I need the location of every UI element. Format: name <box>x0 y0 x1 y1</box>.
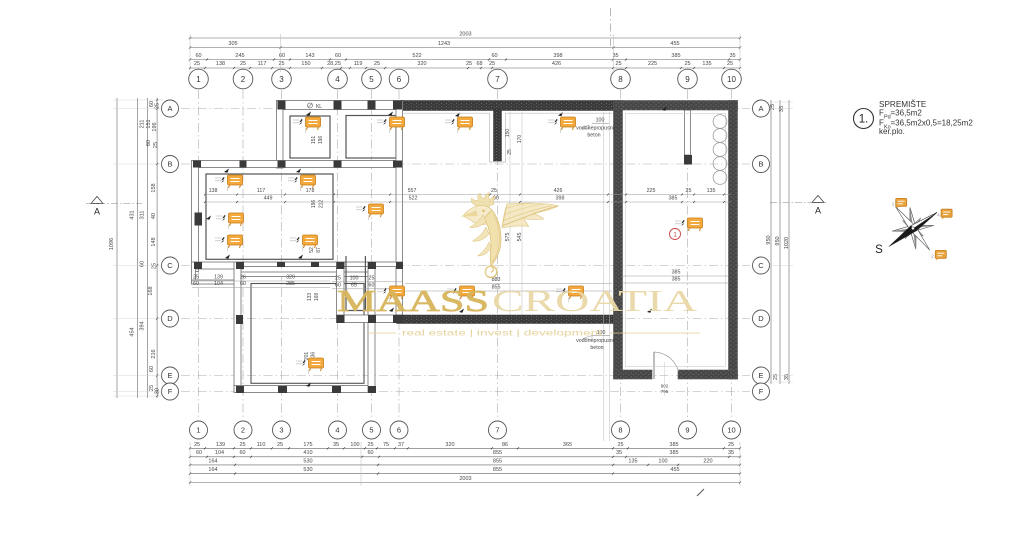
svg-text:25: 25 <box>727 61 733 67</box>
svg-text:4: 4 <box>335 426 339 435</box>
svg-text:2: 2 <box>241 75 246 84</box>
svg-text:60: 60 <box>146 140 152 146</box>
svg-text:135: 135 <box>707 188 716 194</box>
svg-text:1.: 1. <box>859 114 869 126</box>
svg-text:225: 225 <box>648 61 657 67</box>
svg-text:100: 100 <box>658 458 667 464</box>
svg-text:25: 25 <box>374 61 380 67</box>
svg-text:575: 575 <box>505 233 511 242</box>
svg-text:225: 225 <box>647 188 656 194</box>
svg-text:320: 320 <box>417 61 426 67</box>
svg-text:MAASS: MAASS <box>337 283 489 318</box>
svg-text:60: 60 <box>140 261 146 267</box>
svg-text:35: 35 <box>729 53 735 59</box>
svg-text:25: 25 <box>194 61 200 67</box>
svg-text:139: 139 <box>216 442 225 448</box>
svg-text:25: 25 <box>686 188 692 194</box>
svg-text:26: 26 <box>240 274 246 280</box>
svg-text:37: 37 <box>398 442 404 448</box>
svg-text:110: 110 <box>257 442 266 448</box>
svg-text:8: 8 <box>618 75 623 84</box>
svg-text:138: 138 <box>209 188 218 194</box>
svg-text:104: 104 <box>214 281 223 287</box>
svg-text:117: 117 <box>257 188 265 194</box>
svg-text:245: 245 <box>235 53 244 59</box>
svg-text:KL: KL <box>316 104 322 110</box>
svg-text:530: 530 <box>303 458 312 464</box>
svg-text:7: 7 <box>495 426 499 435</box>
svg-text:1: 1 <box>196 75 201 84</box>
svg-text:2003: 2003 <box>459 476 471 482</box>
svg-text:285: 285 <box>286 281 295 287</box>
svg-text:40: 40 <box>151 213 157 219</box>
svg-text:1020: 1020 <box>784 237 790 249</box>
svg-text:4: 4 <box>335 75 340 84</box>
svg-text:455: 455 <box>670 41 679 47</box>
svg-text:119: 119 <box>354 61 363 67</box>
svg-text:545: 545 <box>517 233 523 242</box>
svg-text:426: 426 <box>552 61 561 67</box>
svg-text:320: 320 <box>286 274 295 280</box>
svg-text:522: 522 <box>409 196 418 202</box>
svg-text:178: 178 <box>306 188 315 194</box>
svg-text:D: D <box>758 314 764 323</box>
svg-text:25: 25 <box>369 275 375 281</box>
svg-text:168: 168 <box>148 286 154 295</box>
svg-text:35: 35 <box>333 442 339 448</box>
svg-text:398: 398 <box>556 196 565 202</box>
svg-text:139: 139 <box>214 274 223 280</box>
svg-text:212: 212 <box>319 200 325 209</box>
svg-text:86: 86 <box>502 442 508 448</box>
svg-text:148: 148 <box>151 237 157 246</box>
svg-text:A: A <box>167 104 172 113</box>
svg-text:196: 196 <box>318 136 324 145</box>
svg-text:D: D <box>167 314 173 323</box>
svg-text:beton: beton <box>587 133 600 139</box>
svg-text:C: C <box>167 261 173 270</box>
svg-text:6: 6 <box>397 426 401 435</box>
svg-text:216: 216 <box>151 349 157 358</box>
svg-text:557: 557 <box>408 188 417 194</box>
svg-text:1: 1 <box>196 426 200 435</box>
svg-text:104: 104 <box>215 450 224 456</box>
svg-text:426: 426 <box>554 188 563 194</box>
svg-text:164: 164 <box>208 458 217 464</box>
svg-text:25: 25 <box>277 442 283 448</box>
svg-text:25: 25 <box>728 442 734 448</box>
svg-text:164: 164 <box>208 467 217 473</box>
svg-text:100: 100 <box>350 442 359 448</box>
svg-text:143: 143 <box>305 53 314 59</box>
svg-text:855: 855 <box>493 458 502 464</box>
svg-text:F: F <box>759 387 764 396</box>
svg-text:F: F <box>168 387 173 396</box>
svg-text:175: 175 <box>303 442 312 448</box>
svg-text:902: 902 <box>661 384 669 389</box>
svg-text:60: 60 <box>240 281 246 287</box>
svg-text:75: 75 <box>383 442 389 448</box>
svg-text:10: 10 <box>727 426 735 435</box>
svg-text:133: 133 <box>307 293 313 302</box>
svg-text:320: 320 <box>445 442 454 448</box>
svg-text:25: 25 <box>491 188 497 194</box>
svg-text:87: 87 <box>316 247 322 253</box>
svg-text:B: B <box>758 160 763 169</box>
svg-text:168: 168 <box>314 293 320 302</box>
svg-text:220: 220 <box>703 458 712 464</box>
svg-text:150: 150 <box>301 61 310 67</box>
svg-text:25: 25 <box>153 142 159 148</box>
svg-text:138: 138 <box>216 61 225 67</box>
svg-text:795: 795 <box>661 389 669 394</box>
svg-text:3: 3 <box>279 75 284 84</box>
svg-text:410: 410 <box>303 450 312 456</box>
svg-text:60: 60 <box>367 450 373 456</box>
svg-text:E: E <box>758 371 763 380</box>
svg-text:25: 25 <box>770 104 776 110</box>
svg-text:vodonepropusni: vodonepropusni <box>576 338 614 344</box>
svg-text:SPREMIŠTE: SPREMIŠTE <box>879 99 927 109</box>
svg-text:60: 60 <box>195 53 201 59</box>
svg-text:855: 855 <box>493 467 502 473</box>
svg-text:68: 68 <box>476 61 482 67</box>
svg-text:385: 385 <box>671 53 680 59</box>
svg-text:2003: 2003 <box>459 31 471 37</box>
svg-text:196: 196 <box>152 122 158 131</box>
svg-text:431: 431 <box>130 210 136 219</box>
svg-text:385: 385 <box>672 276 681 282</box>
svg-text:ker.plo.: ker.plo. <box>879 127 905 136</box>
svg-text:25: 25 <box>773 374 779 380</box>
svg-text:151: 151 <box>311 136 317 145</box>
svg-text:522: 522 <box>412 53 421 59</box>
svg-text:real estate | invest | develop: real estate | invest | development <box>402 328 603 338</box>
svg-text:950: 950 <box>775 236 781 245</box>
svg-text:A: A <box>94 207 100 217</box>
svg-text:S: S <box>875 244 883 256</box>
svg-text:B: B <box>167 160 172 169</box>
svg-text:35: 35 <box>784 374 790 380</box>
svg-text:25: 25 <box>466 61 472 67</box>
svg-text:25: 25 <box>278 61 284 67</box>
svg-text:385: 385 <box>672 269 681 275</box>
svg-text:117: 117 <box>258 61 267 67</box>
svg-text:60: 60 <box>491 53 497 59</box>
svg-text:25: 25 <box>239 442 245 448</box>
svg-text:385: 385 <box>669 450 678 456</box>
svg-text:25: 25 <box>617 442 623 448</box>
svg-text:449: 449 <box>264 196 273 202</box>
svg-text:25: 25 <box>194 442 200 448</box>
svg-text:=36,5m2: =36,5m2 <box>891 109 923 118</box>
svg-text:135: 135 <box>702 61 711 67</box>
svg-text:1243: 1243 <box>438 41 450 47</box>
svg-text:28,25: 28,25 <box>327 61 341 67</box>
svg-text:CROATIA: CROATIA <box>492 283 698 318</box>
svg-text:100: 100 <box>596 118 605 124</box>
svg-text:455: 455 <box>670 467 679 473</box>
svg-text:5: 5 <box>369 75 374 84</box>
svg-text:7: 7 <box>495 75 500 84</box>
svg-text:A: A <box>815 206 821 216</box>
svg-text:60: 60 <box>196 450 202 456</box>
svg-text:855: 855 <box>493 450 502 456</box>
svg-text:9: 9 <box>685 75 690 84</box>
svg-text:2: 2 <box>241 426 245 435</box>
svg-text:60: 60 <box>335 53 341 59</box>
svg-text:311: 311 <box>140 211 146 220</box>
svg-text:158: 158 <box>151 183 157 192</box>
svg-text:60: 60 <box>149 366 155 372</box>
svg-text:950: 950 <box>766 235 772 244</box>
svg-text:9: 9 <box>685 426 689 435</box>
svg-text:100: 100 <box>350 275 359 281</box>
svg-text:394: 394 <box>140 321 146 330</box>
svg-text:25: 25 <box>335 275 341 281</box>
svg-text:52: 52 <box>309 247 315 253</box>
svg-text:305: 305 <box>228 41 237 47</box>
svg-text:398: 398 <box>553 53 562 59</box>
svg-text:385: 385 <box>669 442 678 448</box>
svg-text:25: 25 <box>240 61 246 67</box>
svg-text:25: 25 <box>193 274 199 280</box>
svg-text:530: 530 <box>303 467 312 473</box>
svg-text:454: 454 <box>130 327 136 336</box>
svg-text:6: 6 <box>397 75 402 84</box>
svg-text:25: 25 <box>615 61 621 67</box>
svg-text:35: 35 <box>616 450 622 456</box>
svg-text:beton: beton <box>590 345 603 351</box>
svg-text:8: 8 <box>618 426 622 435</box>
svg-text:135: 135 <box>628 458 637 464</box>
svg-text:385: 385 <box>669 196 678 202</box>
svg-text:1096: 1096 <box>109 238 115 250</box>
svg-text:E: E <box>167 371 172 380</box>
svg-text:25: 25 <box>489 61 495 67</box>
svg-text:35: 35 <box>779 106 785 112</box>
svg-text:A: A <box>758 104 763 113</box>
svg-text:3: 3 <box>279 426 283 435</box>
svg-text:196: 196 <box>311 200 317 209</box>
svg-text:10: 10 <box>727 75 736 84</box>
svg-text:365: 365 <box>563 442 572 448</box>
svg-text:C: C <box>758 261 764 270</box>
svg-text:vodonepropusni: vodonepropusni <box>576 126 614 132</box>
svg-text:5: 5 <box>369 426 373 435</box>
svg-text:35: 35 <box>728 450 734 456</box>
svg-text:60: 60 <box>279 53 285 59</box>
svg-text:25: 25 <box>684 61 690 67</box>
svg-text:60: 60 <box>239 450 245 456</box>
svg-text:211: 211 <box>140 120 146 129</box>
svg-text:60: 60 <box>193 281 199 287</box>
svg-text:25: 25 <box>367 442 373 448</box>
